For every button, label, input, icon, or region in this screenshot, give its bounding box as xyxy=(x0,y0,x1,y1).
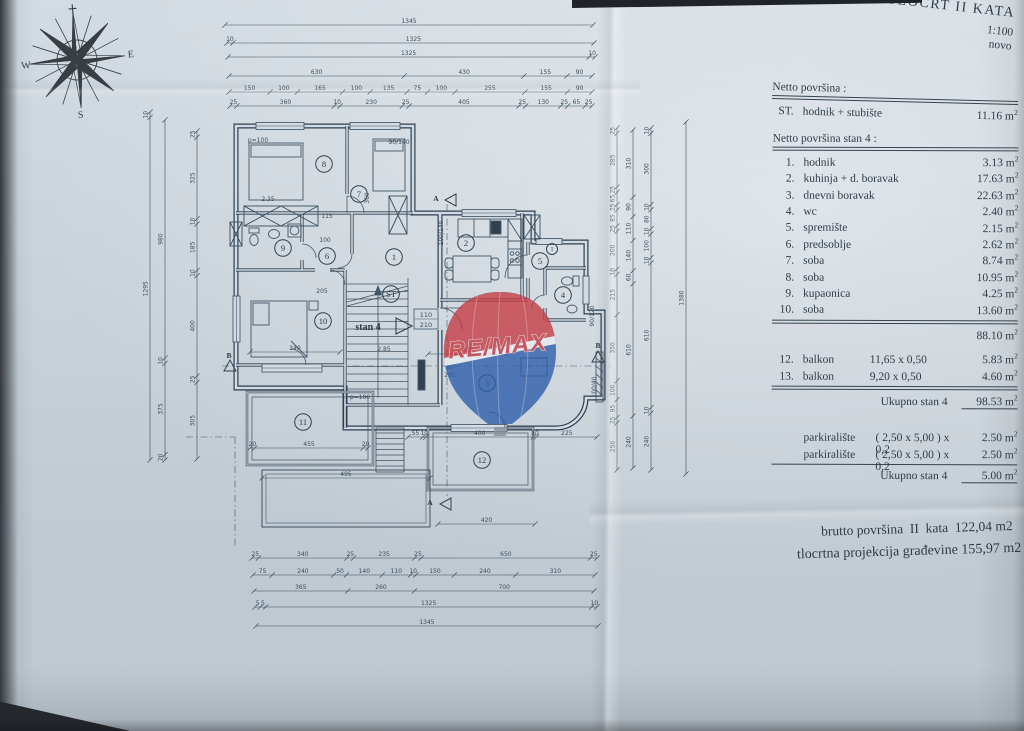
dim-label: 700 xyxy=(498,584,510,591)
row-value: 3.13 m2 xyxy=(962,155,1018,170)
total-value: 98.53 m2 xyxy=(962,394,1018,410)
dim-label: 260 xyxy=(375,584,387,591)
row-number: 2. xyxy=(772,173,794,185)
dim-label: 340 xyxy=(297,551,309,558)
row-dimensions: 11,65 x 0,50 xyxy=(870,354,962,366)
dim-label: 1325 xyxy=(406,36,421,43)
section-marker-letter: B xyxy=(595,341,600,350)
plan-label: 100/140 xyxy=(438,220,445,245)
table-row: 13.balkon9,20 x 0,504.60 m2 xyxy=(772,368,1018,385)
row-number: 6. xyxy=(772,239,794,251)
dim-label: 215 xyxy=(610,289,617,301)
room-number: 2 xyxy=(464,238,468,248)
row-number: 9. xyxy=(772,288,794,300)
nightstand xyxy=(309,301,318,310)
dim-label: 325 xyxy=(190,172,197,184)
dim-label: 10 xyxy=(531,430,539,437)
row-name: hodnik xyxy=(803,157,962,170)
divider xyxy=(772,320,1018,325)
room-number: 10 xyxy=(319,316,328,326)
dim-label: 200 xyxy=(610,244,617,256)
plan-label: 205 xyxy=(316,288,328,295)
dim-label: 400 xyxy=(190,320,197,332)
dim-label: 5 xyxy=(256,600,260,607)
dim-label: 10 xyxy=(190,217,197,225)
dim-label: 25 xyxy=(402,99,410,106)
dim-label: 1380 xyxy=(679,290,686,305)
door-tag-width: 110 xyxy=(420,311,432,319)
row-name: parkiralište xyxy=(804,432,876,444)
row-number: 1. xyxy=(772,157,794,169)
dim-label: 100 xyxy=(351,85,363,92)
unit-arrow-icon xyxy=(396,318,412,334)
table-row: 12.balkon11,65 x 0,505.83 m2 xyxy=(772,351,1018,368)
dim-label: 50 xyxy=(336,568,344,575)
dim-label: 25 xyxy=(414,551,422,558)
room-number: 12 xyxy=(478,455,487,465)
row-name: soba xyxy=(803,272,962,285)
row-number: 12. xyxy=(772,354,794,366)
dim-label: 20 xyxy=(158,453,165,461)
table-row: 7.soba8.74 m2 xyxy=(772,252,1018,269)
dim-label: 430 xyxy=(458,69,470,76)
dim-label: 110 xyxy=(391,568,403,575)
dim-label: 10 xyxy=(409,568,417,575)
dimension-chains: 1345101325132510630430155901501001651001… xyxy=(143,18,689,629)
table-row: parkiralište( 2,50 x 5,00 ) x 0,22.50 m2 xyxy=(771,446,1017,463)
room-number: 4 xyxy=(561,290,566,300)
compass-e-label: E xyxy=(127,49,134,60)
dim-label: 300 xyxy=(644,163,651,175)
dim-label: 20 xyxy=(249,441,257,448)
room-number: 6 xyxy=(325,251,329,261)
dim-label: 25 xyxy=(560,99,568,106)
table-row: ST. hodnik + stubište 11.16 m2 xyxy=(772,102,1018,124)
divider xyxy=(772,386,1018,391)
row-number: 8. xyxy=(772,272,794,284)
dim-label: 135 xyxy=(383,85,395,92)
parking-total-value: 5.00 m2 xyxy=(961,468,1017,484)
table-row: 9.kupaonica4.25 m2 xyxy=(772,285,1018,302)
dim-label: 1325 xyxy=(421,600,436,607)
room-number: 9 xyxy=(281,243,285,253)
dim-label: 10 xyxy=(644,256,651,264)
dim-label: 25 xyxy=(518,99,526,106)
dim-label: 1295 xyxy=(143,281,150,296)
dim-label: 5 xyxy=(261,600,265,607)
dining-table xyxy=(445,256,499,282)
row-name: spremište xyxy=(803,222,962,235)
plan-label: 360 xyxy=(364,192,371,204)
dim-label: 25 xyxy=(610,127,617,135)
dim-label: 400 xyxy=(474,430,486,437)
dim-label: 90 xyxy=(576,69,584,76)
row-value: 4.25 m2 xyxy=(962,286,1018,301)
divider xyxy=(773,147,1019,152)
door-tag-height: 210 xyxy=(420,321,432,329)
dim-label: 310 xyxy=(626,158,633,170)
unit-label: stan 4 xyxy=(355,322,380,333)
row-name: dnevni boravak xyxy=(803,190,962,203)
dim-label: 420 xyxy=(481,517,493,524)
row-name: kuhinja + d. boravak xyxy=(803,173,962,186)
subtotal-value: 88.10 m2 xyxy=(962,328,1018,343)
row-value: 13.60 m2 xyxy=(962,302,1018,317)
dim-label: 100 xyxy=(644,240,651,252)
section-marker-letter: A xyxy=(427,498,433,507)
dim-label: 100 xyxy=(610,384,617,396)
dim-label: 10 xyxy=(333,99,341,106)
dim-label: 365 xyxy=(295,584,307,591)
row-value: 10.95 m2 xyxy=(962,269,1018,284)
parking-total-label: Ukupno stan 4 xyxy=(771,470,961,483)
dim-label: 240 xyxy=(479,568,491,575)
dim-label: 75 xyxy=(259,568,267,575)
row-value: 2.40 m2 xyxy=(962,204,1018,219)
room-number: 11 xyxy=(299,417,307,427)
dim-label: 360 xyxy=(280,99,292,106)
table-row: 2.kuhinja + d. boravak17.63 m2 xyxy=(772,170,1018,187)
dim-label: 10 xyxy=(644,203,651,211)
row-number: 3. xyxy=(772,190,794,202)
dim-label: 25 xyxy=(190,375,197,383)
row-number: 5. xyxy=(772,222,794,234)
dim-label: 100 xyxy=(278,85,290,92)
dim-label: 65 xyxy=(573,99,581,106)
row-value: 5.83 m2 xyxy=(962,352,1018,367)
row-name: balkon xyxy=(803,354,870,366)
photographed-floorplan-document: W E S xyxy=(0,0,1024,731)
dim-label: 230 xyxy=(365,99,377,106)
dim-label: 150 xyxy=(429,568,441,575)
dim-label: 20 xyxy=(362,441,370,448)
dim-label: 25 xyxy=(251,551,259,558)
dim-label: 90 xyxy=(626,203,633,211)
dim-label: 60 xyxy=(626,273,633,281)
dim-label: 25 xyxy=(610,203,617,211)
row-value: 22.63 m2 xyxy=(962,187,1018,202)
dim-label: 10 xyxy=(158,357,165,365)
dim-label: 10 xyxy=(591,600,599,607)
plan-label: 115 xyxy=(321,213,333,220)
dim-label: 250 xyxy=(610,441,617,453)
dim-label: 55 xyxy=(412,430,420,437)
dim-label: 10 xyxy=(143,111,150,119)
row-name: wc xyxy=(803,206,962,219)
dim-label: 150 xyxy=(244,85,256,92)
dim-label: 375 xyxy=(158,403,165,415)
dim-label: 25 xyxy=(610,225,617,233)
dim-label: 1345 xyxy=(419,619,434,626)
row-name: predsoblje xyxy=(803,239,962,252)
stan4-header: Netto površina stan 4 : xyxy=(773,133,1019,146)
dim-label: 185 xyxy=(190,241,197,253)
plan-label: 90/140 xyxy=(388,139,409,146)
dim-label: 285 xyxy=(610,154,617,166)
dim-label: 610 xyxy=(644,329,651,341)
dim-label: 495 xyxy=(340,471,352,478)
table-row: 8.soba10.95 m2 xyxy=(772,269,1018,286)
dim-label: 80 xyxy=(644,215,651,223)
row-number: 13. xyxy=(772,370,794,382)
total-label: Ukupno stan 4 xyxy=(772,396,962,409)
room-number: 7 xyxy=(357,189,361,199)
dim-label: 10 xyxy=(644,406,651,414)
room-rows: 1.hodnik3.13 m22.kuhinja + d. boravak17.… xyxy=(772,154,1019,319)
row-number: 7. xyxy=(772,255,794,267)
row-value: 8.74 m2 xyxy=(962,253,1018,268)
dim-label: 630 xyxy=(311,69,323,76)
section-marker-letter: A xyxy=(433,194,439,203)
table-row: parkiralište( 2,50 x 5,00 ) x 0,22.50 m2 xyxy=(772,429,1018,446)
subtotal-row: 88.10 m2 xyxy=(772,327,1018,344)
row-value: 4.60 m2 xyxy=(962,368,1018,383)
plan-label: 90/120 xyxy=(589,305,596,326)
row-value: 2.50 m2 xyxy=(964,430,1018,445)
dim-label: 340 xyxy=(289,345,301,352)
table-row: 3.dnevni boravak22.63 m2 xyxy=(772,187,1018,204)
dim-label: 240 xyxy=(297,568,309,575)
dim-label: 225 xyxy=(561,430,573,437)
dim-label: 10 xyxy=(644,227,651,235)
room-number: 1 xyxy=(392,252,396,262)
dim-label: 25 xyxy=(610,186,617,194)
plan-label: 100/40 xyxy=(591,376,598,397)
dim-label: 10 xyxy=(226,36,234,43)
north-cross-icon xyxy=(68,4,77,15)
plan-label: 2.85 xyxy=(377,346,391,353)
compass-w-label: W xyxy=(21,60,32,72)
row-value: 11.16 m2 xyxy=(962,107,1018,123)
dim-label: 240 xyxy=(626,436,633,448)
dim-label: 25 xyxy=(230,99,238,106)
table-row: 6.predsoblje2.62 m2 xyxy=(772,236,1018,253)
dim-label: 140 xyxy=(626,250,633,262)
area-table: Netto površina : ST. hodnik + stubište 1… xyxy=(772,84,1018,484)
bed-room8 xyxy=(249,143,303,200)
row-name: soba xyxy=(803,255,962,268)
plan-label: 2.35 xyxy=(261,196,275,203)
dim-label: 130 xyxy=(538,99,550,106)
row-value: 2.15 m2 xyxy=(962,220,1018,235)
dim-label: 650 xyxy=(500,551,512,558)
dim-label: 10 xyxy=(420,430,428,437)
row-dimensions: 9,20 x 0,50 xyxy=(870,371,962,383)
section-marker-letter: B xyxy=(226,351,231,360)
dim-label: 155 xyxy=(540,85,552,92)
room-number: ST xyxy=(386,289,397,299)
total-row: Ukupno stan 4 98.53 m2 xyxy=(772,393,1018,410)
dim-label: 980 xyxy=(158,233,165,245)
dim-label: 110 xyxy=(626,223,633,235)
plan-label: p=100 xyxy=(350,394,370,401)
dim-label: 25 xyxy=(346,551,354,558)
dim-label: 1345 xyxy=(401,18,416,25)
parking-total-row: Ukupno stan 4 5.00 m2 xyxy=(771,467,1017,484)
row-name: kupaonica xyxy=(803,288,962,301)
dim-label: 25 xyxy=(590,551,598,558)
dim-label: 310 xyxy=(550,568,562,575)
room-number: 8 xyxy=(322,159,326,169)
row-value: 2.62 m2 xyxy=(962,237,1018,252)
row-value: 2.50 m2 xyxy=(964,446,1018,461)
dim-label: 100 xyxy=(436,85,448,92)
room-number: 1 xyxy=(550,246,553,253)
balloon-basket xyxy=(494,427,506,436)
dim-label: 240 xyxy=(644,436,651,448)
dim-label: 25 xyxy=(190,130,197,138)
dim-label: 455 xyxy=(303,441,315,448)
compass-rose: W E S xyxy=(16,0,139,126)
table-row: 4.wc2.40 m2 xyxy=(772,203,1018,220)
row-name: balkon xyxy=(803,371,870,383)
dim-label: 25 xyxy=(610,416,617,424)
dim-label: 350 xyxy=(610,342,617,354)
parking-rows: parkiralište( 2,50 x 5,00 ) x 0,22.50 m2… xyxy=(771,429,1017,463)
row-name: hodnik + stubište xyxy=(803,106,962,122)
table-row: 10.soba13.60 m2 xyxy=(772,301,1018,318)
dim-label: 25 xyxy=(585,99,593,106)
plan-label: p=100 xyxy=(248,137,268,144)
dim-label: 10 xyxy=(610,268,617,276)
row-number: ST. xyxy=(772,105,794,118)
dim-label: 140 xyxy=(359,568,371,575)
row-number: 4. xyxy=(772,206,794,218)
dim-label: 235 xyxy=(378,551,390,558)
dim-label: 65 xyxy=(610,195,617,203)
dim-label: 10 xyxy=(190,269,197,277)
table-row: 5.spremište2.15 m2 xyxy=(772,220,1018,237)
exterior-stairs xyxy=(376,428,404,472)
dim-label: 10 xyxy=(588,50,596,57)
dim-label: 255 xyxy=(484,85,496,92)
table-row: 1.hodnik3.13 m2 xyxy=(772,154,1018,171)
room-number: 5 xyxy=(538,256,542,266)
dim-label: 75 xyxy=(414,85,422,92)
dim-label: 10 xyxy=(644,127,651,135)
dim-label: 95 xyxy=(610,405,617,413)
plan-label: 100 xyxy=(319,237,331,244)
dim-label: 405 xyxy=(458,99,470,106)
row-name: soba xyxy=(803,304,962,317)
balcony-rows: 12.balkon11,65 x 0,505.83 m213.balkon9,2… xyxy=(772,351,1018,385)
kitchen xyxy=(458,219,522,278)
dim-label: 1325 xyxy=(401,50,416,57)
compass-s-label: S xyxy=(77,110,84,121)
dim-label: 165 xyxy=(314,85,326,92)
dim-label: 155 xyxy=(540,69,552,76)
remax-watermark: RE/MAX xyxy=(440,290,560,436)
row-value: 17.63 m2 xyxy=(962,171,1018,186)
dim-label: 610 xyxy=(626,344,633,356)
dim-label: 90 xyxy=(576,85,584,92)
dim-label: 85 xyxy=(610,214,617,222)
row-name: parkiralište xyxy=(803,449,875,461)
row-number: 10. xyxy=(772,304,794,316)
dim-label: 305 xyxy=(190,415,197,427)
bed-room7 xyxy=(373,139,405,191)
